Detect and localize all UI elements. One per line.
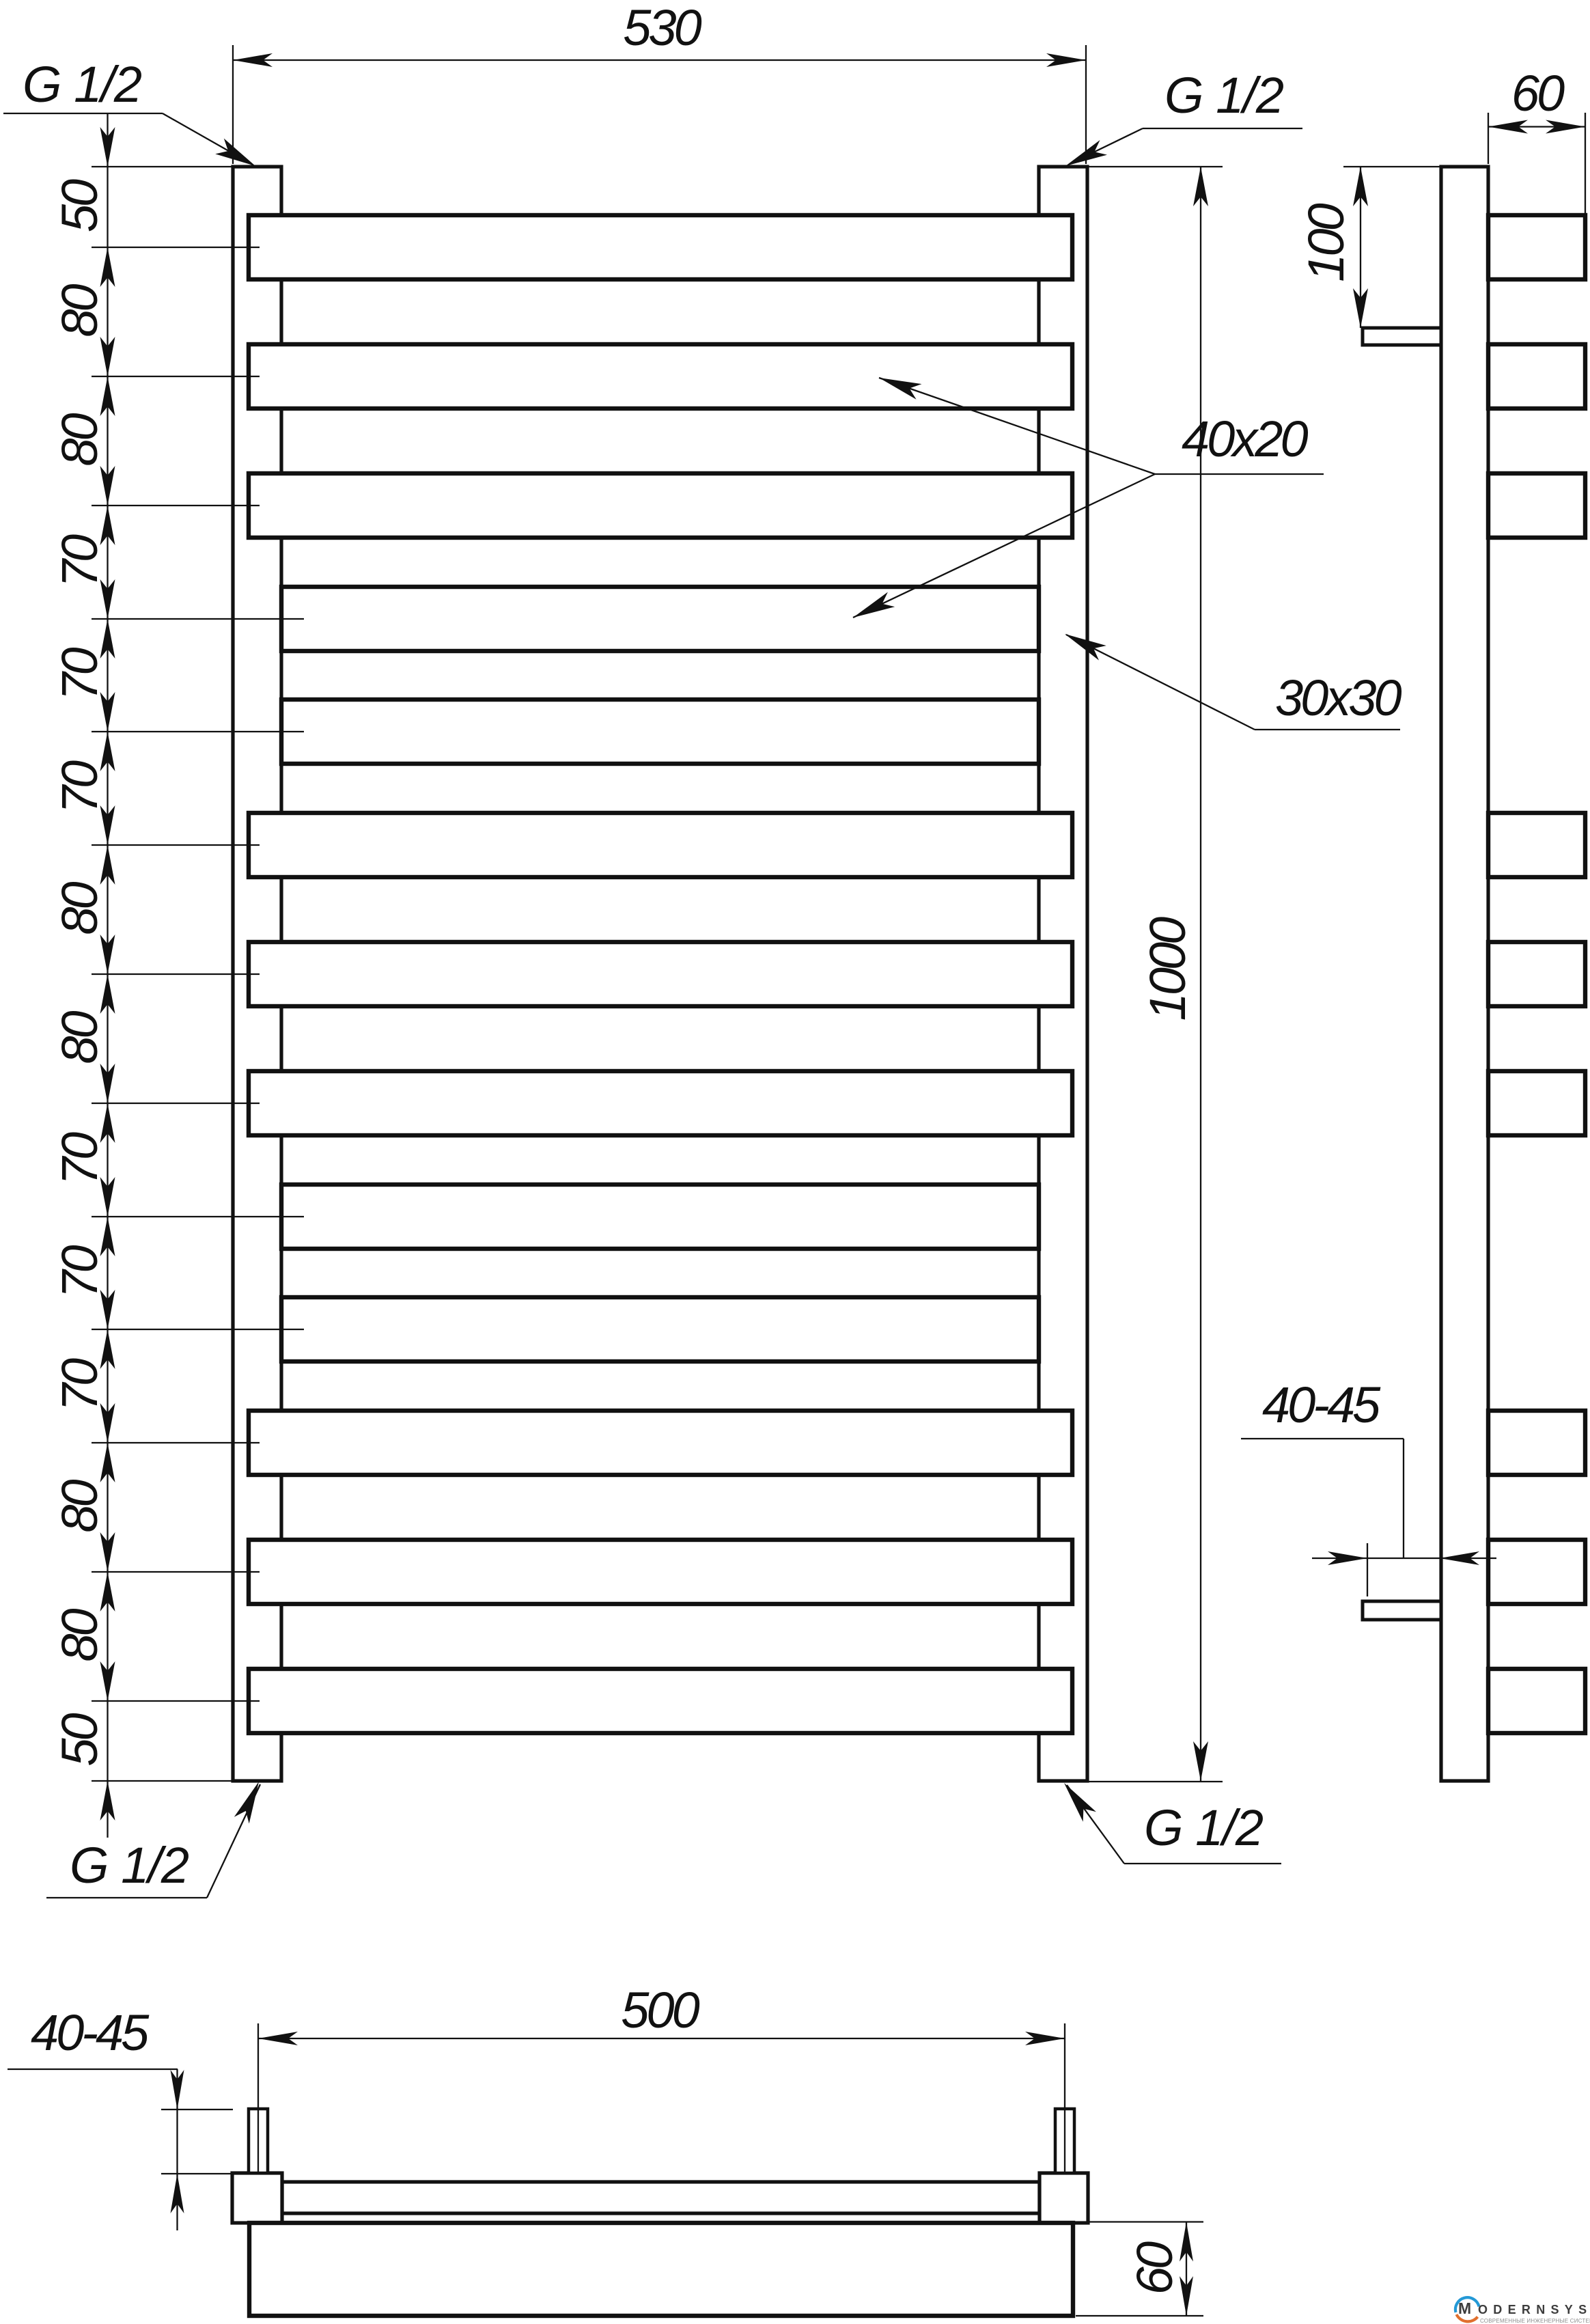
svg-text:M: M (1458, 2299, 1471, 2317)
svg-text:80: 80 (51, 1011, 108, 1064)
svg-text:G 1/2: G 1/2 (1144, 1799, 1264, 1856)
svg-text:50: 50 (51, 179, 108, 232)
svg-text:70: 70 (51, 1245, 108, 1299)
svg-text:40-45: 40-45 (31, 2004, 150, 2061)
svg-text:60: 60 (1511, 65, 1565, 122)
svg-text:70: 70 (51, 1132, 108, 1185)
svg-text:40-45: 40-45 (1262, 1377, 1381, 1433)
svg-text:80: 80 (51, 284, 108, 337)
svg-text:70: 70 (51, 648, 108, 701)
svg-text:40x20: 40x20 (1182, 411, 1308, 467)
svg-text:ODERNSYS: ODERNSYS (1478, 2303, 1590, 2316)
svg-text:G 1/2: G 1/2 (1164, 67, 1284, 124)
svg-text:60: 60 (1126, 2241, 1183, 2295)
svg-text:70: 70 (51, 760, 108, 814)
svg-text:1000: 1000 (1139, 917, 1196, 1021)
svg-text:100: 100 (1298, 203, 1354, 281)
svg-text:80: 80 (51, 1609, 108, 1662)
svg-text:80: 80 (51, 413, 108, 467)
svg-text:G 1/2: G 1/2 (70, 1837, 189, 1894)
svg-text:500: 500 (621, 1982, 699, 2038)
svg-text:80: 80 (51, 1480, 108, 1533)
svg-text:50: 50 (51, 1713, 108, 1767)
svg-text:70: 70 (51, 1358, 108, 1411)
svg-text:G 1/2: G 1/2 (23, 56, 142, 113)
svg-text:30x30: 30x30 (1275, 669, 1401, 726)
svg-text:70: 70 (51, 534, 108, 587)
svg-text:530: 530 (623, 0, 701, 56)
svg-text:80: 80 (51, 882, 108, 935)
svg-text:СОВРЕМЕННЫЕ ИНЖЕНЕРНЫЕ СИСТЕМЫ: СОВРЕМЕННЫЕ ИНЖЕНЕРНЫЕ СИСТЕМЫ (1480, 2318, 1590, 2324)
